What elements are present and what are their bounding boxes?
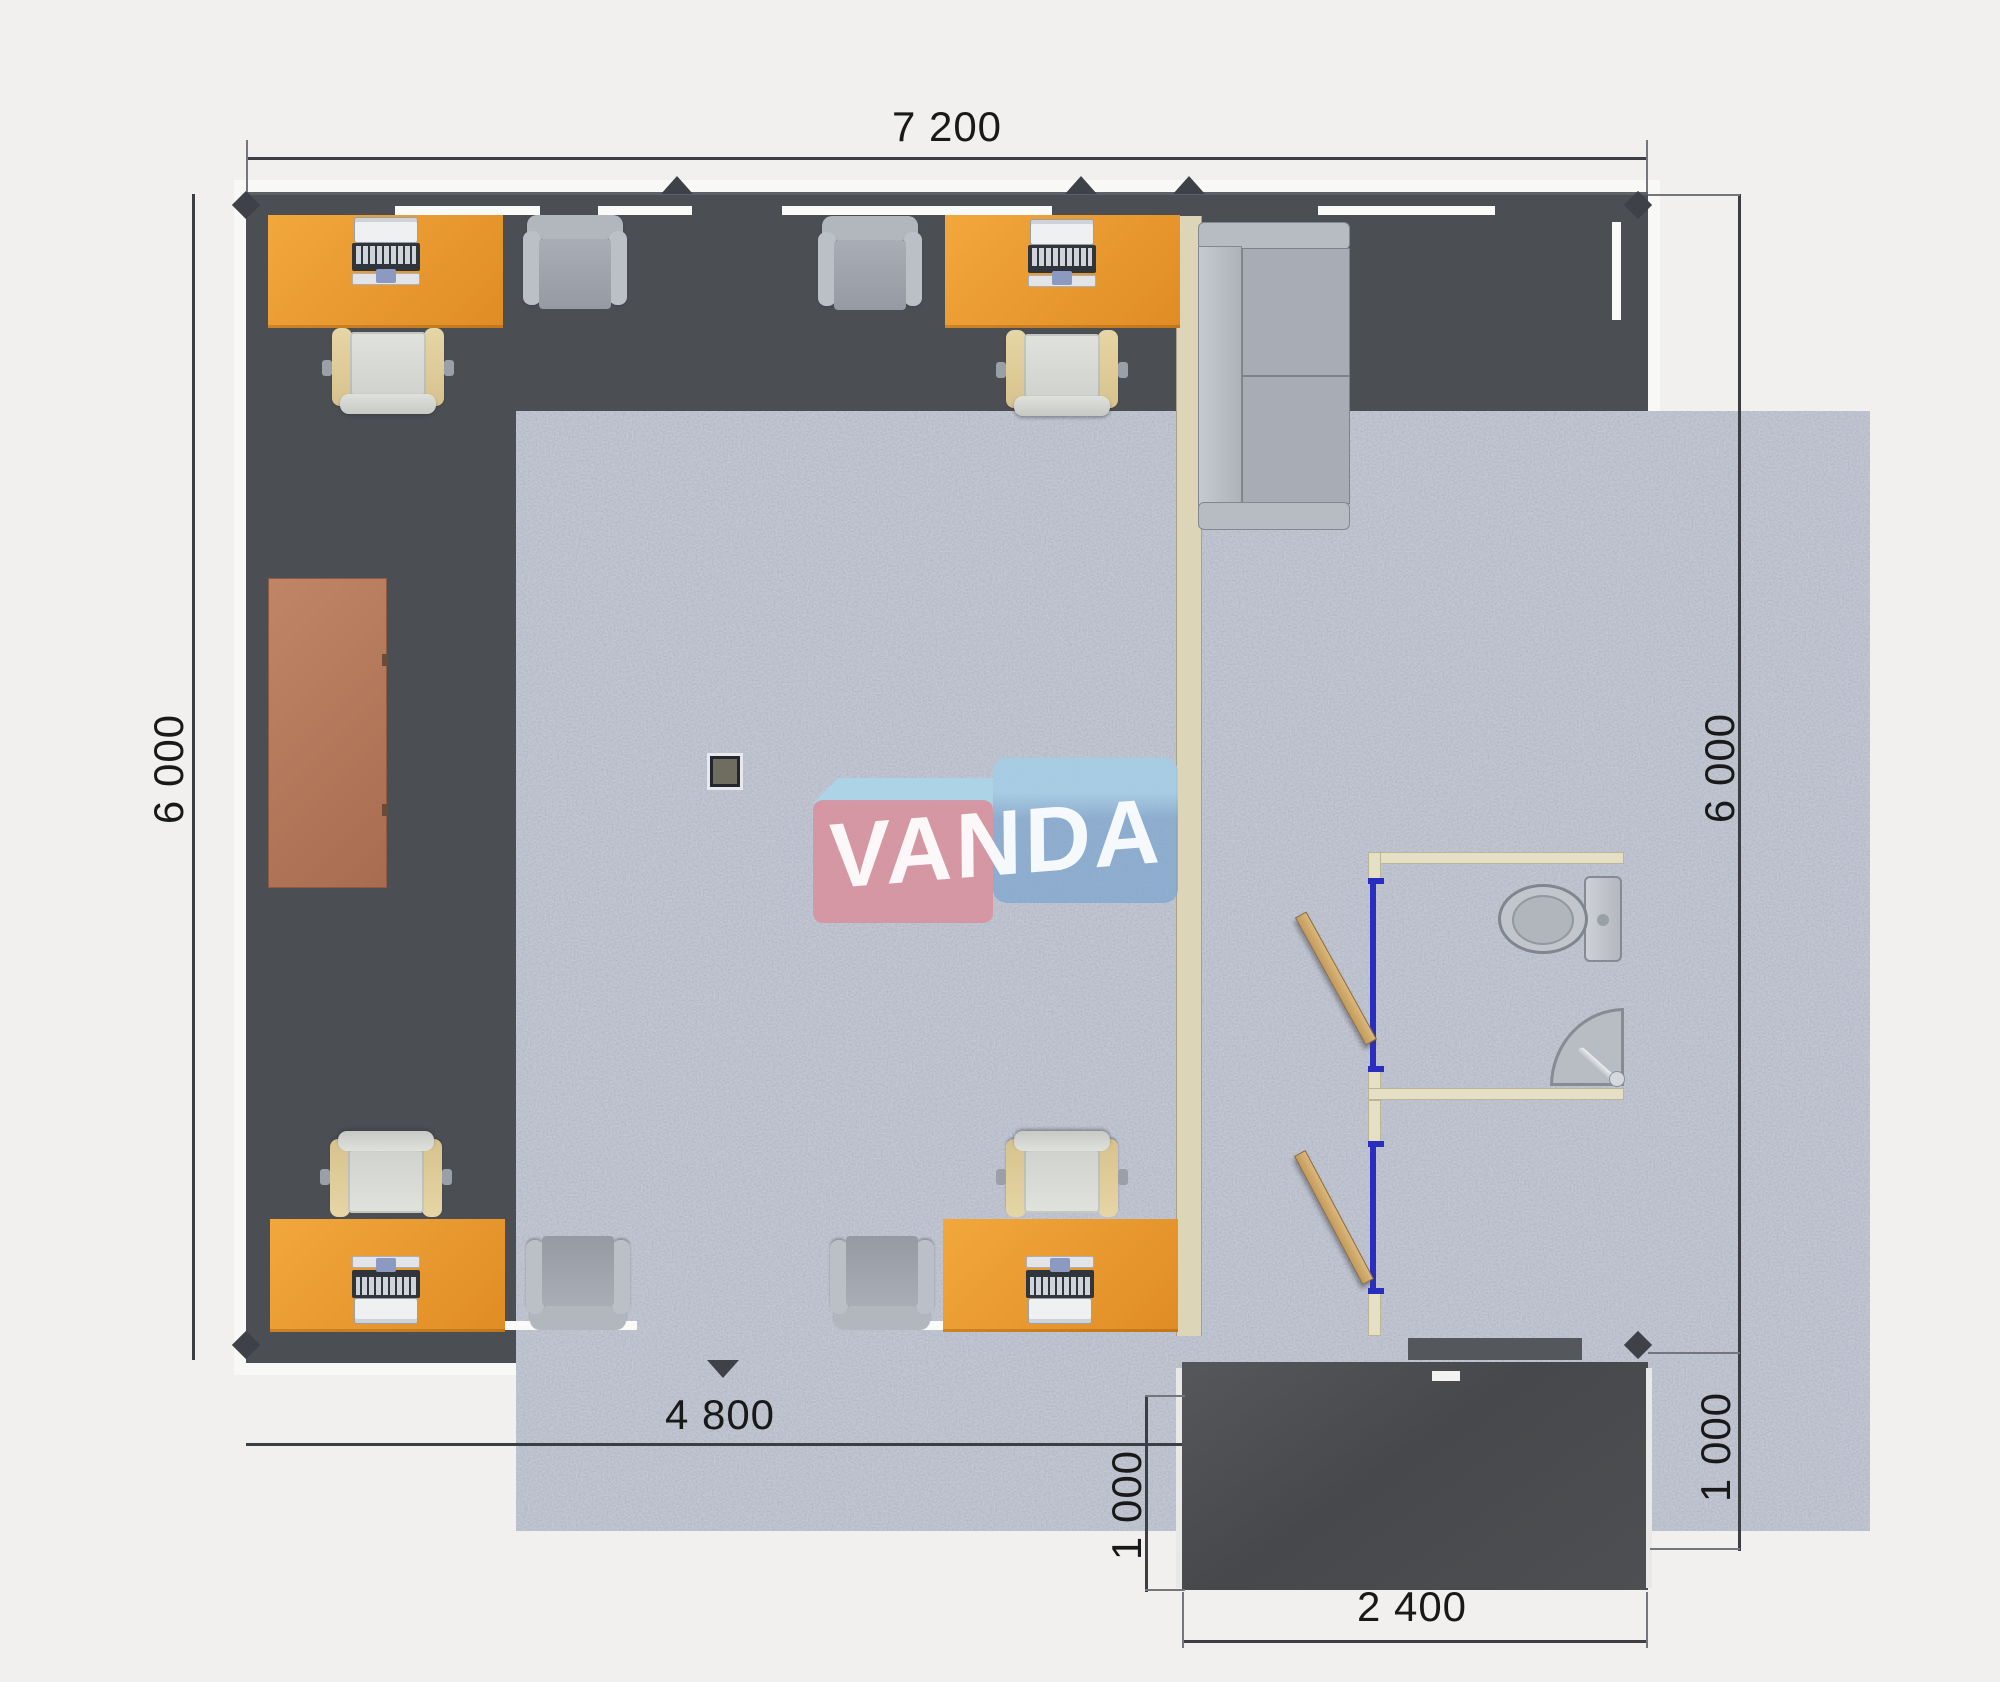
module-marker bbox=[1173, 176, 1205, 194]
window-top-4 bbox=[1318, 206, 1495, 215]
floor-outlet-box bbox=[710, 756, 740, 787]
office-chair bbox=[1006, 330, 1118, 416]
window-right-1 bbox=[1612, 222, 1621, 320]
dim-line-top bbox=[246, 157, 1648, 160]
dim-label-top-width: 7 200 bbox=[797, 99, 1097, 155]
dim-label-bottom-width: 4 800 bbox=[570, 1387, 870, 1443]
module-marker bbox=[707, 1360, 739, 1378]
dim-label-porch-left-height: 1 000 bbox=[1099, 1355, 1155, 1655]
ext-line bbox=[246, 140, 248, 192]
entrance-porch bbox=[1182, 1362, 1648, 1590]
dim-line-porch-bottom bbox=[1182, 1640, 1648, 1643]
laptop-trackpad bbox=[376, 269, 396, 283]
vanda-watermark: VANDA bbox=[808, 744, 1184, 930]
floor-plan-canvas: 7 200 6 000 6 000 1 000 4 800 1 000 2 40… bbox=[0, 0, 2000, 1682]
dim-label-porch-width: 2 400 bbox=[1262, 1579, 1562, 1635]
door-frame bbox=[1368, 1288, 1384, 1294]
armchair bbox=[526, 1230, 630, 1330]
ext-line bbox=[1646, 1592, 1648, 1648]
door-frame bbox=[1370, 1147, 1376, 1288]
laptop-computer bbox=[352, 217, 420, 285]
sink-faucet-knob bbox=[1609, 1071, 1625, 1087]
bathroom-wall-top bbox=[1368, 852, 1624, 864]
toilet-flush-button bbox=[1597, 914, 1609, 926]
dim-label-right-height: 6 000 bbox=[1692, 618, 1748, 918]
laptop-computer bbox=[352, 1256, 420, 1324]
module-marker bbox=[661, 176, 693, 194]
porch-edge bbox=[1176, 1368, 1182, 1588]
laptop-screen bbox=[354, 217, 418, 243]
armchair bbox=[830, 1230, 934, 1330]
dim-line-bottom bbox=[246, 1443, 1182, 1446]
laptop-computer bbox=[1026, 1256, 1094, 1324]
door-frame bbox=[1368, 1066, 1384, 1072]
sideboard-cabinet bbox=[268, 578, 387, 888]
entrance-door bbox=[1408, 1338, 1582, 1360]
entrance-door-threshold bbox=[1432, 1371, 1460, 1381]
dim-label-left-height: 6 000 bbox=[141, 619, 197, 919]
door-frame bbox=[1368, 878, 1384, 884]
sofa bbox=[1198, 222, 1356, 530]
office-chair bbox=[332, 328, 444, 414]
office-chair bbox=[1006, 1131, 1118, 1217]
porch-edge bbox=[1646, 1368, 1652, 1588]
bathroom-wall-middle bbox=[1368, 1088, 1624, 1100]
laptop-keyboard bbox=[352, 243, 420, 271]
dim-label-porch-right-height: 1 000 bbox=[1688, 1297, 1744, 1597]
ext-line bbox=[1646, 140, 1648, 192]
ext-line bbox=[1182, 1592, 1184, 1648]
ext-line bbox=[1648, 194, 1740, 196]
storage-wall-left bbox=[1368, 1100, 1381, 1145]
toilet-bowl bbox=[1498, 884, 1588, 954]
storage-wall-left bbox=[1368, 1288, 1381, 1336]
laptop-computer bbox=[1028, 219, 1096, 287]
window-top-2 bbox=[598, 206, 692, 215]
module-marker bbox=[1065, 176, 1097, 194]
window-top-3 bbox=[782, 206, 1052, 215]
office-chair bbox=[330, 1131, 442, 1217]
window-top-1 bbox=[395, 206, 540, 215]
armchair bbox=[523, 215, 627, 315]
door-frame bbox=[1368, 1141, 1384, 1147]
toilet-tank bbox=[1584, 876, 1622, 962]
armchair bbox=[818, 216, 922, 316]
